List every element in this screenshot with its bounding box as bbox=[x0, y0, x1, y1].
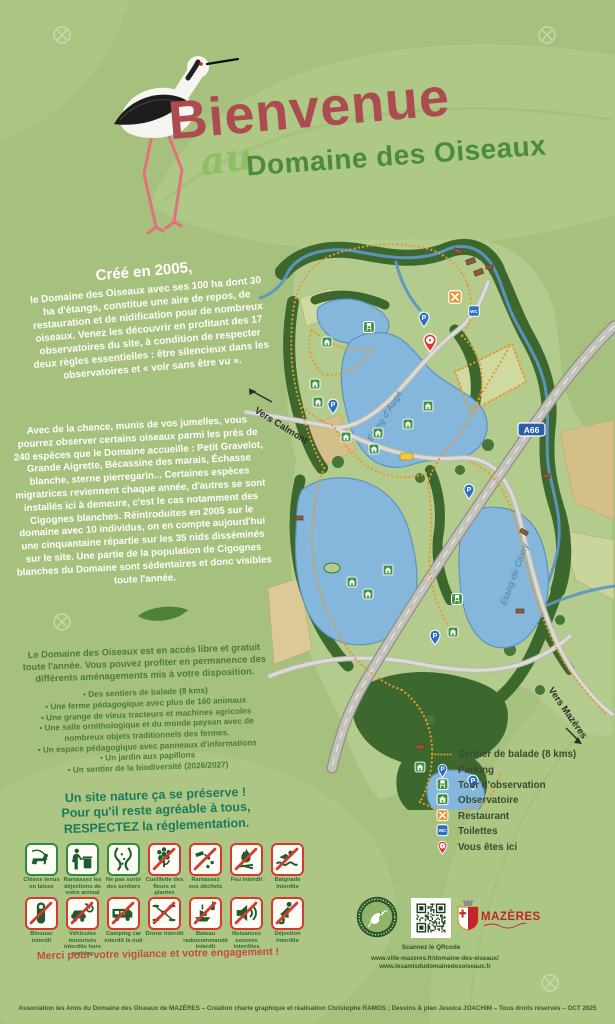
map-observatory-icon bbox=[322, 337, 332, 347]
site-map: Vers Calmont Vers Mazères A66 Étang d'Au… bbox=[235, 228, 615, 810]
trail-line-icon bbox=[430, 747, 454, 762]
mazeres-logo-text: MAZÈRES bbox=[481, 910, 541, 923]
restaurant-icon bbox=[430, 809, 454, 824]
credits-line: Association les Amis du Domaine des Oise… bbox=[0, 1005, 615, 1012]
rule-label: Ramassez vos déchets bbox=[186, 877, 225, 890]
rc-boat-icon bbox=[189, 897, 222, 930]
rule-label: Ramassez les déjections de votre animal bbox=[63, 877, 102, 897]
rule-bivouac: Bivouac interdit bbox=[22, 897, 61, 958]
rule-label: Chiens tenus en laisse bbox=[22, 877, 61, 890]
rule-label: Bivouac interdit bbox=[22, 931, 61, 944]
map-observatory-icon bbox=[448, 627, 458, 637]
rule-stay-on-path: Ne pas sortir des sentiers bbox=[104, 843, 143, 904]
svg-text:P: P bbox=[422, 315, 427, 322]
svg-text:WC: WC bbox=[470, 309, 478, 314]
map-observatory-icon bbox=[347, 577, 357, 587]
svg-text:P: P bbox=[440, 766, 444, 773]
litter-icon bbox=[189, 843, 222, 876]
map-observatory-icon bbox=[313, 397, 323, 407]
bivouac-icon bbox=[25, 897, 58, 930]
map-observatory-icon bbox=[415, 762, 425, 772]
map-observatory-icon bbox=[363, 589, 373, 599]
mazeres-tagline-flourish bbox=[484, 923, 526, 928]
legend-label: Sentier de balade (8 kms) bbox=[458, 749, 576, 760]
map-restaurant-icon bbox=[449, 291, 461, 303]
flower-picking-icon bbox=[148, 843, 181, 876]
map-observatory-icon bbox=[341, 432, 351, 442]
rule-pet-waste: Ramassez les déjections de votre animal bbox=[63, 843, 102, 904]
svg-text:A66: A66 bbox=[524, 425, 540, 435]
legend-row: Observatoire bbox=[430, 793, 576, 808]
observatory-icon bbox=[430, 793, 454, 808]
legend-row: PParking bbox=[430, 762, 576, 777]
rule-label: Déjection interdite bbox=[268, 931, 307, 944]
drone-icon bbox=[148, 897, 181, 930]
mazeres-logo: MAZÈRES bbox=[456, 900, 544, 940]
pet-waste-icon bbox=[66, 843, 99, 876]
rule-fire: Feu interdit bbox=[227, 843, 266, 904]
observation-tower-icon bbox=[430, 778, 454, 793]
map-toilets-icon: WC bbox=[469, 306, 480, 317]
rule-flower-picking: Cueillette des fleurs et plantes interdi… bbox=[145, 843, 184, 904]
rule-label: Baignade interdite bbox=[268, 877, 307, 890]
camper-icon bbox=[107, 897, 140, 930]
map-legend: Sentier de balade (8 kms)PParkingTour d'… bbox=[430, 747, 576, 855]
map-observatory-icon bbox=[383, 565, 393, 575]
fire-icon bbox=[230, 843, 263, 876]
legend-label: Parking bbox=[458, 765, 494, 776]
noise-icon bbox=[230, 897, 263, 930]
rule-label: Drone interdit bbox=[145, 931, 183, 938]
stay-on-path-icon bbox=[107, 843, 140, 876]
rule-dog-leash: Chiens tenus en laisse bbox=[22, 843, 61, 904]
map-observatory-icon bbox=[310, 379, 320, 389]
qr-caption: Scannez le QRcode bbox=[400, 944, 462, 951]
toilets-icon: WC bbox=[430, 824, 454, 839]
association-logo bbox=[356, 896, 398, 938]
rule-label: Camping car interdit la nuit bbox=[104, 931, 143, 944]
map-observation-tower-icon bbox=[364, 322, 375, 333]
map-observatory-icon bbox=[423, 401, 433, 411]
qr-code bbox=[411, 898, 451, 938]
dog-leash-icon bbox=[25, 843, 58, 876]
rule-swimming: Baignade interdite bbox=[268, 843, 307, 904]
rules-pictogram-row-1: Chiens tenus en laisseRamassez les déjec… bbox=[22, 843, 307, 904]
leaf-divider-icon bbox=[136, 602, 190, 624]
map-observatory-icon bbox=[369, 444, 379, 454]
map-observation-tower-icon bbox=[452, 594, 463, 605]
legend-label: Toilettes bbox=[458, 826, 498, 837]
legend-row: WCToilettes bbox=[430, 824, 576, 839]
defecation-icon bbox=[271, 897, 304, 930]
svg-text:P: P bbox=[467, 487, 472, 494]
legend-label: Restaurant bbox=[458, 811, 509, 822]
mazeres-crest-icon bbox=[458, 900, 478, 930]
rule-label: Feu interdit bbox=[231, 877, 263, 884]
you-are-here-icon bbox=[430, 840, 454, 855]
legend-row: Restaurant bbox=[430, 809, 576, 824]
parking-pin-icon: P bbox=[430, 763, 454, 778]
welcome-sign: Bienvenue au Domaine des Oiseaux Créé en… bbox=[0, 0, 615, 1024]
svg-text:WC: WC bbox=[438, 828, 446, 834]
map-observatory-icon bbox=[373, 428, 383, 438]
website-url-1: www.ville-mazeres.fr/domaine-des-oiseaux… bbox=[340, 955, 530, 963]
legend-label: Vous êtes ici bbox=[458, 842, 517, 853]
amenities-intro: Le Domaine des Oiseaux est en accès libr… bbox=[18, 641, 271, 686]
map-observatory-icon bbox=[403, 419, 413, 429]
legend-label: Tour d'observation bbox=[458, 780, 546, 791]
website-url-2: www.lesamisdudomainedesoiseaux.fr bbox=[340, 963, 530, 971]
legend-row: Vous êtes ici bbox=[430, 839, 576, 854]
motor-vehicle-icon bbox=[66, 897, 99, 930]
website-urls: www.ville-mazeres.fr/domaine-des-oiseaux… bbox=[340, 955, 530, 972]
svg-text:P: P bbox=[331, 402, 336, 409]
road-badge bbox=[400, 453, 413, 460]
legend-row: Tour d'observation bbox=[430, 778, 576, 793]
swimming-icon bbox=[271, 843, 304, 876]
rule-litter: Ramassez vos déchets bbox=[186, 843, 225, 904]
svg-text:P: P bbox=[433, 633, 438, 640]
legend-label: Observatoire bbox=[458, 795, 518, 806]
legend-row: Sentier de balade (8 kms) bbox=[430, 747, 576, 762]
highway-badge-a66: A66 bbox=[518, 423, 545, 436]
rule-label: Ne pas sortir des sentiers bbox=[104, 877, 143, 890]
